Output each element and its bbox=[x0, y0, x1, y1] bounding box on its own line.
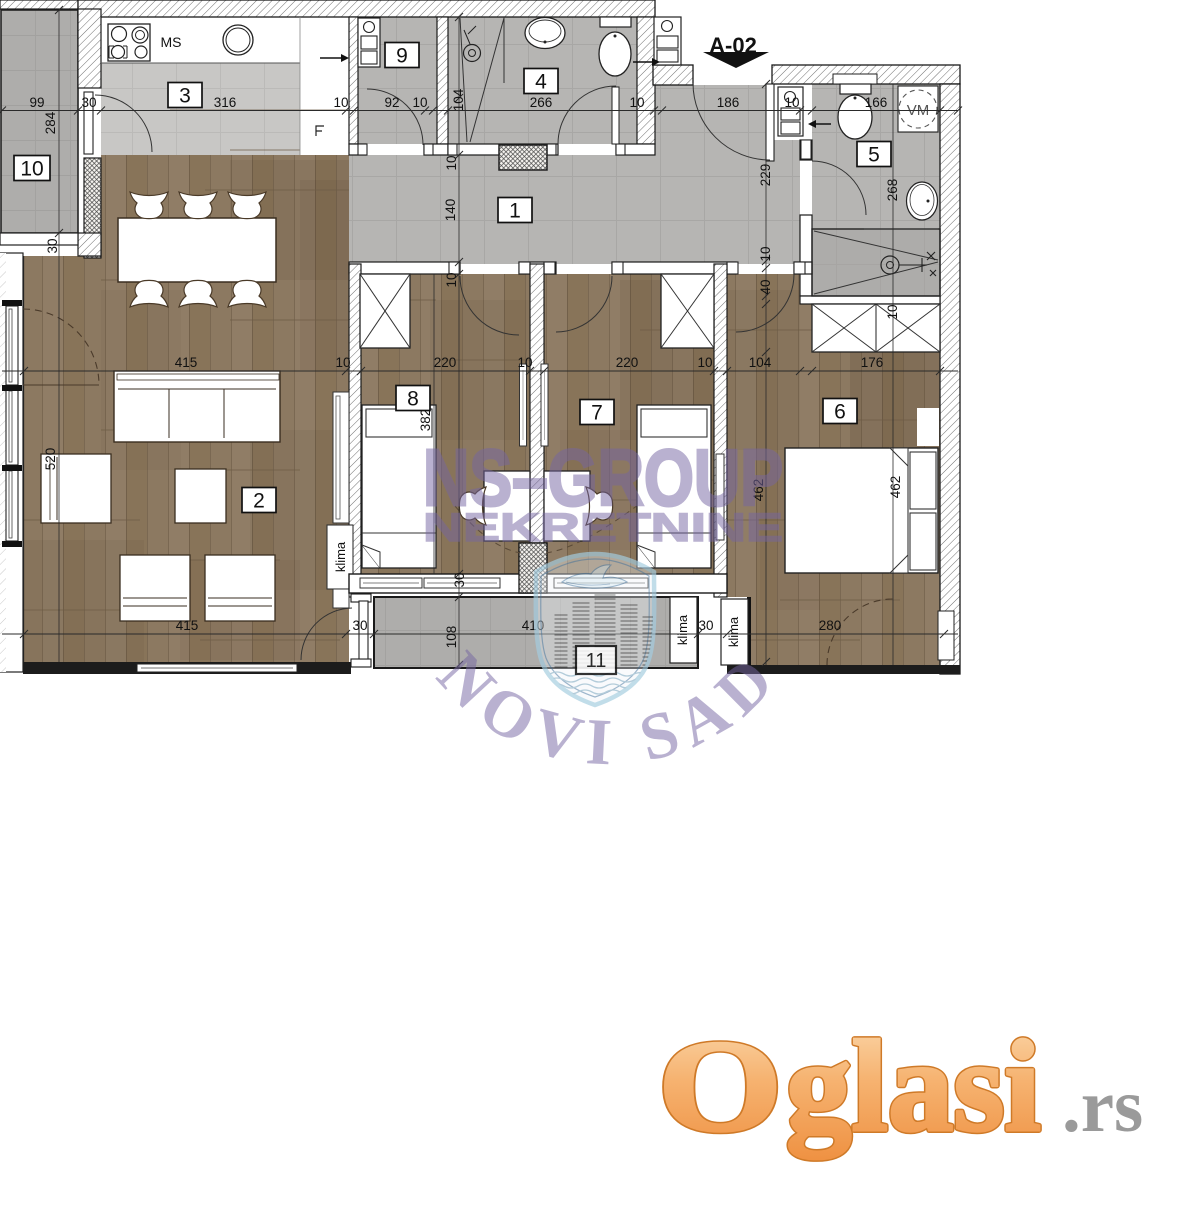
svg-text:415: 415 bbox=[175, 355, 198, 370]
svg-text:186: 186 bbox=[717, 95, 740, 110]
svg-text:glasi: glasi bbox=[786, 1014, 1041, 1159]
svg-text:8: 8 bbox=[407, 388, 419, 411]
svg-text:30: 30 bbox=[698, 618, 713, 633]
svg-text:30: 30 bbox=[45, 238, 60, 253]
svg-text:92: 92 bbox=[384, 95, 399, 110]
svg-text:1: 1 bbox=[509, 200, 521, 223]
svg-text:10: 10 bbox=[444, 155, 459, 170]
svg-text:10: 10 bbox=[335, 355, 350, 370]
svg-text:176: 176 bbox=[861, 355, 884, 370]
svg-text:462: 462 bbox=[888, 476, 903, 499]
svg-text:30: 30 bbox=[352, 618, 367, 633]
svg-text:108: 108 bbox=[444, 626, 459, 649]
svg-text:99: 99 bbox=[29, 95, 44, 110]
svg-text:klima: klima bbox=[726, 616, 741, 647]
svg-text:316: 316 bbox=[214, 95, 237, 110]
svg-text:10: 10 bbox=[885, 304, 900, 319]
svg-text:220: 220 bbox=[616, 355, 639, 370]
svg-text:10: 10 bbox=[412, 95, 427, 110]
svg-text:10: 10 bbox=[333, 95, 348, 110]
svg-text:284: 284 bbox=[43, 111, 58, 134]
svg-text:30: 30 bbox=[81, 95, 96, 110]
svg-text:140: 140 bbox=[443, 199, 458, 222]
svg-text:104: 104 bbox=[749, 355, 772, 370]
svg-text:10: 10 bbox=[784, 95, 799, 110]
svg-text:268: 268 bbox=[885, 179, 900, 202]
svg-text:166: 166 bbox=[865, 95, 888, 110]
svg-text:104: 104 bbox=[451, 88, 466, 111]
svg-text:229: 229 bbox=[758, 164, 773, 187]
svg-text:382: 382 bbox=[418, 409, 433, 432]
svg-text:NEKRETNINE: NEKRETNINE bbox=[423, 506, 783, 550]
svg-text:.rs: .rs bbox=[1062, 1065, 1143, 1148]
svg-text:4: 4 bbox=[535, 71, 547, 94]
svg-text:6: 6 bbox=[834, 401, 846, 424]
svg-text:415: 415 bbox=[176, 618, 199, 633]
svg-text:266: 266 bbox=[530, 95, 553, 110]
svg-text:220: 220 bbox=[434, 355, 457, 370]
svg-text:klima: klima bbox=[675, 614, 690, 645]
svg-text:30: 30 bbox=[452, 572, 467, 587]
svg-text:10: 10 bbox=[20, 158, 43, 181]
svg-text:10: 10 bbox=[517, 355, 532, 370]
svg-text:O: O bbox=[658, 1013, 782, 1158]
svg-text:280: 280 bbox=[819, 618, 842, 633]
svg-text:520: 520 bbox=[43, 448, 58, 471]
svg-text:7: 7 bbox=[591, 402, 603, 425]
svg-text:3: 3 bbox=[179, 85, 191, 108]
svg-text:9: 9 bbox=[396, 45, 408, 68]
svg-text:klima: klima bbox=[333, 541, 348, 572]
svg-text:MS: MS bbox=[161, 34, 182, 50]
svg-text:10: 10 bbox=[629, 95, 644, 110]
svg-text:10: 10 bbox=[697, 355, 712, 370]
svg-text:11: 11 bbox=[586, 650, 607, 672]
svg-text:10: 10 bbox=[758, 246, 773, 261]
svg-text:5: 5 bbox=[868, 144, 880, 167]
svg-text:10: 10 bbox=[444, 272, 459, 287]
svg-text:40: 40 bbox=[758, 279, 773, 294]
svg-text:2: 2 bbox=[253, 490, 265, 513]
